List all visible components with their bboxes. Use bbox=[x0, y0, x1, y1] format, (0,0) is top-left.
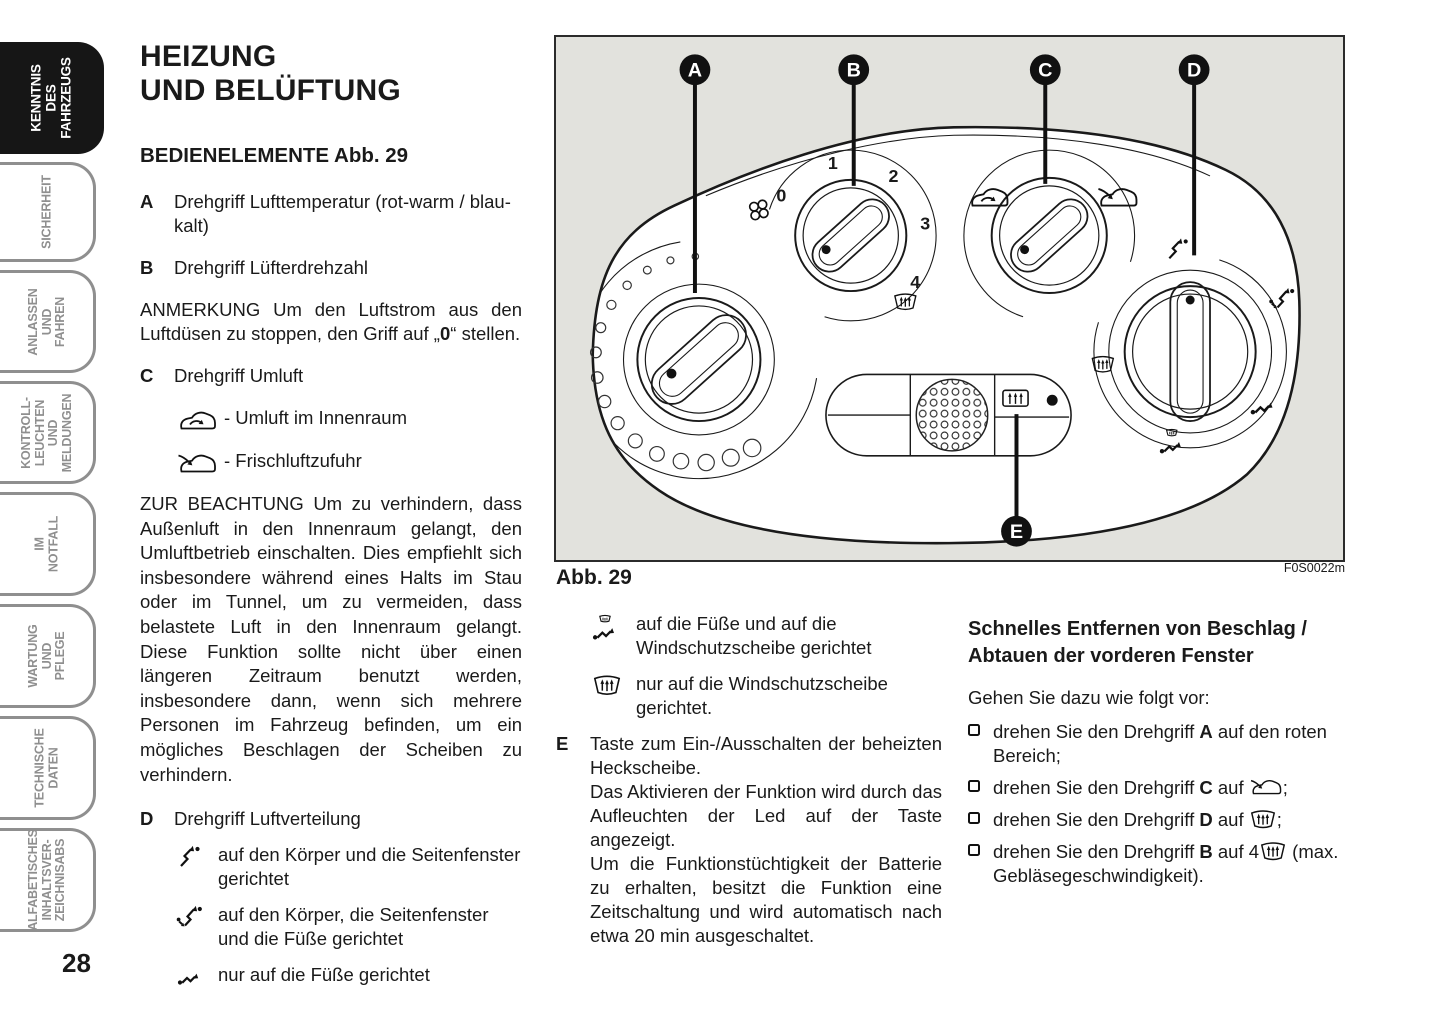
e-paragraph: Das Aktivieren der Funktion wird durch d… bbox=[590, 780, 942, 852]
item-key: A bbox=[140, 190, 174, 238]
callout-c: C bbox=[1038, 60, 1052, 82]
step-text: drehen Sie den Drehgriff bbox=[993, 721, 1199, 742]
option-text: nur auf die Füße gerichtet bbox=[218, 963, 522, 989]
sidebar-tab-technische-daten: TECHNISCHE DATEN bbox=[0, 716, 96, 820]
car-fresh-air-icon bbox=[1249, 777, 1283, 798]
windshield-defrost-icon bbox=[592, 672, 636, 720]
checkbox-bullet-icon bbox=[968, 812, 980, 824]
windshield-defrost-icon bbox=[1249, 810, 1277, 829]
sidebar-tab-label: IM NOTFALL bbox=[33, 516, 60, 572]
step-text: ; bbox=[1283, 777, 1288, 798]
list-item-e: E Taste zum Ein-/Ausschalten der beheizt… bbox=[556, 732, 942, 948]
step-key: B bbox=[1199, 841, 1212, 862]
step-3: drehen Sie den Drehgriff D auf ; bbox=[968, 808, 1348, 832]
step-1: drehen Sie den Drehgriff A auf den roten… bbox=[968, 720, 1348, 768]
note-paragraph: ANMERKUNG Um den Luftstrom aus den Luftd… bbox=[140, 298, 522, 346]
air-to-feet-and-windshield-icon bbox=[592, 612, 636, 660]
sidebar-tab-wartung-und-pflege: WARTUNG UND PFLEGE bbox=[0, 604, 96, 708]
page-number: 28 bbox=[62, 948, 91, 979]
sidebar-tab-label: WARTUNG UND PFLEGE bbox=[26, 624, 67, 687]
air-to-body-icon bbox=[176, 843, 218, 891]
heater-panel-drawing: 0 1 2 3 4 bbox=[556, 37, 1343, 560]
note-bold: 0 bbox=[440, 323, 450, 344]
figure-caption: Abb. 29 bbox=[556, 566, 632, 590]
sidebar-tab-label: ALFABETISCHES INHALTSVER- ZEICHNISABS bbox=[26, 829, 67, 931]
air-to-feet-icon bbox=[176, 963, 218, 989]
warning-paragraph: ZUR BEACHTUNG Um zu verhindern, dass Auß… bbox=[140, 492, 522, 787]
step-text: drehen Sie den Drehgriff bbox=[993, 841, 1199, 862]
sidebar-tab-sicherheit: SICHERHEIT bbox=[0, 162, 96, 262]
step-2: drehen Sie den Drehgriff C auf ; bbox=[968, 776, 1348, 800]
step-4: drehen Sie den Drehgriff B auf 4 (max. G… bbox=[968, 840, 1348, 888]
c-option-recirculation: - Umluft im Innenraum bbox=[140, 406, 522, 437]
sidebar-tab-label: ANLASSEN UND FAHREN bbox=[26, 288, 67, 355]
right-column: Schnelles Entfernen von Beschlag / Abtau… bbox=[968, 616, 1348, 896]
figure-code: F0S0022m bbox=[1145, 561, 1345, 575]
callout-e: E bbox=[1010, 521, 1023, 543]
c-option-fresh-air: - Frischluftzufuhr bbox=[140, 449, 522, 480]
fan-tick-3: 3 bbox=[920, 214, 930, 234]
sidebar-tab-im-notfall: IM NOTFALL bbox=[0, 492, 96, 596]
option-text: - Umluft im Innenraum bbox=[224, 406, 522, 437]
item-text: Drehgriff Lufttemperatur (rot-warm / bla… bbox=[174, 190, 522, 238]
item-key: C bbox=[140, 364, 174, 388]
d-option-windshield: nur auf die Windschutzscheibe gerichtet. bbox=[556, 672, 942, 720]
sidebar-tab-label: SICHERHEIT bbox=[40, 175, 54, 249]
e-paragraph: Um die Funktionstüchtigkeit der Batterie… bbox=[590, 852, 942, 948]
item-key: E bbox=[556, 732, 590, 948]
sidebar-tab-label: KONTROLL- LEUCHTEN UND MELDUNGEN bbox=[20, 393, 74, 472]
fan-tick-1: 1 bbox=[828, 153, 838, 173]
step-key: A bbox=[1199, 721, 1212, 742]
option-text: auf den Körper und die Seitenfenster ger… bbox=[218, 843, 522, 891]
step-text: auf bbox=[1213, 777, 1249, 798]
option-text: auf die Füße und auf die Windschutzschei… bbox=[636, 612, 942, 660]
step-key: C bbox=[1199, 777, 1212, 798]
option-text: - Frischluftzufuhr bbox=[224, 449, 522, 480]
air-to-body-and-feet-icon bbox=[176, 903, 218, 951]
list-item-d: D Drehgriff Luftverteilung bbox=[140, 807, 522, 831]
e-paragraph: Taste zum Ein-/Ausschalten der beheizten… bbox=[590, 732, 942, 780]
sidebar-tab-kenntnis-des-fahrzeugs: KENNTNIS DES FAHRZEUGS bbox=[0, 42, 104, 154]
d-option-body-feet: auf den Körper, die Seitenfenster und di… bbox=[140, 903, 522, 951]
checkbox-bullet-icon bbox=[968, 780, 980, 792]
sidebar-tab-anlassen-und-fahren: ANLASSEN UND FAHREN bbox=[0, 270, 96, 373]
section-heading: BEDIENELEMENTE Abb. 29 bbox=[140, 144, 522, 168]
sidebar-tab-label: KENNTNIS DES FAHRZEUGS bbox=[28, 57, 73, 138]
sidebar-tab-inhaltsverzeichnis: ALFABETISCHES INHALTSVER- ZEICHNISABS bbox=[0, 828, 96, 932]
item-text: Drehgriff Lüfterdrehzahl bbox=[174, 256, 522, 280]
callout-b: B bbox=[847, 60, 861, 82]
option-text: nur auf die Windschutzscheibe gerichtet. bbox=[636, 672, 942, 720]
checkbox-bullet-icon bbox=[968, 844, 980, 856]
sidebar-tab-kontrollleuchten: KONTROLL- LEUCHTEN UND MELDUNGEN bbox=[0, 381, 96, 484]
callout-d: D bbox=[1187, 60, 1201, 82]
step-text: auf bbox=[1213, 809, 1249, 830]
note-text: “ stellen. bbox=[450, 323, 520, 344]
fan-tick-4: 4 bbox=[910, 272, 920, 292]
d-option-feet: nur auf die Füße gerichtet bbox=[140, 963, 522, 989]
car-fresh-air-icon bbox=[176, 449, 224, 480]
intro-text: Gehen Sie dazu wie folgt vor: bbox=[968, 686, 1348, 710]
speaker-grille bbox=[916, 379, 987, 450]
option-text: auf den Körper, die Seitenfenster und di… bbox=[218, 903, 522, 951]
windshield-defrost-icon bbox=[1259, 842, 1287, 861]
sidebar-tab-label: TECHNISCHE DATEN bbox=[33, 728, 60, 807]
step-text: ; bbox=[1277, 809, 1282, 830]
middle-column: auf die Füße und auf die Windschutzschei… bbox=[556, 612, 942, 948]
item-key: B bbox=[140, 256, 174, 280]
list-item-c: C Drehgriff Umluft bbox=[140, 364, 522, 388]
list-item-a: A Drehgriff Lufttemperatur (rot-warm / b… bbox=[140, 190, 522, 238]
step-key: D bbox=[1199, 809, 1212, 830]
callout-a: A bbox=[688, 60, 702, 82]
item-key: D bbox=[140, 807, 174, 831]
item-text: Taste zum Ein-/Ausschalten der beheizten… bbox=[590, 732, 942, 948]
step-text: drehen Sie den Drehgriff bbox=[993, 809, 1199, 830]
car-recirculation-icon bbox=[176, 406, 224, 437]
list-item-b: B Drehgriff Lüfterdrehzahl bbox=[140, 256, 522, 280]
fan-tick-0: 0 bbox=[776, 186, 786, 206]
fan-tick-2: 2 bbox=[888, 166, 898, 186]
d-option-feet-windshield: auf die Füße und auf die Windschutzschei… bbox=[556, 612, 942, 660]
section-heading: Schnelles Entfernen von Beschlag / Abtau… bbox=[968, 616, 1348, 670]
item-text: Drehgriff Umluft bbox=[174, 364, 522, 388]
item-text: Drehgriff Luftverteilung bbox=[174, 807, 522, 831]
step-text: drehen Sie den Drehgriff bbox=[993, 777, 1199, 798]
left-column: HEIZUNG UND BELÜFTUNG BEDIENELEMENTE Abb… bbox=[140, 40, 522, 1001]
led-indicator bbox=[1047, 395, 1058, 406]
d-option-body: auf den Körper und die Seitenfenster ger… bbox=[140, 843, 522, 891]
figure-heater-controls: 0 1 2 3 4 bbox=[554, 35, 1345, 562]
checkbox-bullet-icon bbox=[968, 724, 980, 736]
page-title: HEIZUNG UND BELÜFTUNG bbox=[140, 40, 522, 108]
manual-page: KENNTNIS DES FAHRZEUGS SICHERHEIT ANLASS… bbox=[0, 0, 1445, 1018]
step-text: auf 4 bbox=[1213, 841, 1259, 862]
